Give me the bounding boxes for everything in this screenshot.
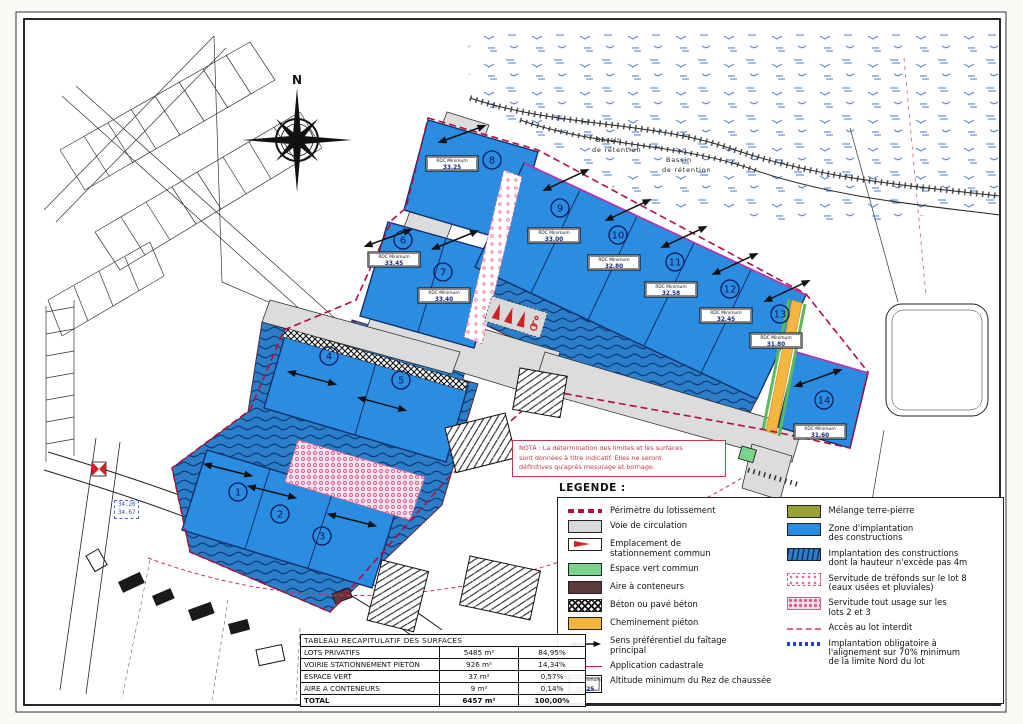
svg-text:8: 8 [489,155,495,166]
rdc-box-lot-12: RDC Minimum 32.45 [700,308,752,323]
rdc-box-lot-10: RDC Minimum 32.80 [588,255,640,270]
svg-text:33.45: 33.45 [385,261,403,267]
rdc-box-lot-14: RDC Minimum 31.60 [794,424,846,439]
perimeter-swatch-icon [568,509,602,513]
building-zone-swatch-icon [787,523,821,536]
legend-box: Périmètre du lotissement Voie de circula… [557,497,1004,704]
spot-elevation: 34.20 34.67 [114,500,139,519]
rdc-box-lot-9: RDC Minimum 33.00 [528,228,580,243]
legend-item-building-zone: Zone d'implantation des constructions [787,523,998,543]
svg-text:9: 9 [557,203,563,214]
legend-item-concrete: Béton ou pavé béton [568,599,779,612]
rdc-box-lot-11: RDC Minimum 32.58 [645,282,697,297]
svg-text:de rétention: de rétention [592,146,641,154]
servitude-trefonds-swatch-icon [787,573,821,586]
containers-swatch-icon [568,581,602,594]
legend-item-earth-stone: Mélange terre-pierre [787,505,998,518]
svg-text:RDC Minimum: RDC Minimum [436,158,467,164]
table-row: AIRE A CONTENEURS 9 m² 0,14% [301,683,586,695]
svg-text:4: 4 [326,351,332,362]
legend-item-mandatory-alignment: Implantation obligatoire à l'alignement … [787,638,998,667]
green-space-swatch-icon [568,563,602,576]
scanned-subdivision-plan: { "plan": { "compass_label": "N", "bassi… [0,0,1023,724]
legend-item-ridge-direction: Sens préférentiel du faîtage principal [568,635,779,655]
bassin-label-1: Bassin [596,136,622,144]
legend-item-altitude: RDC Minimum 33.25 Altitude minimum du Re… [568,675,779,693]
road-swatch-icon [568,520,602,533]
svg-text:de rétention: de rétention [662,166,711,174]
svg-text:RDC Minimum: RDC Minimum [760,335,791,341]
svg-text:33.00: 33.00 [545,237,563,243]
rdc-box-lot-6: RDC Minimum 33.45 [368,252,420,267]
survey-marker-icon [92,462,106,476]
rdc-box-lot-8: RDC Minimum 33.25 [426,156,478,171]
nota-box: NOTA : La détermination des limites et l… [512,440,726,477]
svg-text:1: 1 [235,487,241,498]
svg-text:RDC Minimum: RDC Minimum [538,230,569,236]
no-access-line-icon [787,628,821,630]
svg-text:RDC Minimum: RDC Minimum [598,257,629,263]
svg-text:33.25: 33.25 [443,165,461,171]
legend-item-pedestrian-path: Cheminement piéton [568,617,779,630]
legend-left-column: Périmètre du lotissement Voie de circula… [568,505,779,698]
svg-text:31.80: 31.80 [767,342,785,348]
legend-item-servitude-trefonds: Servitude de tréfonds sur le lot 8 (eaux… [787,573,998,593]
table-row: VOIRIE STATIONNEMENT PIETON 926 m² 14,34… [301,659,586,671]
bassin-label-2: Bassin [666,156,692,164]
servitude-usage-swatch-icon [787,597,821,610]
compass-north-label: N [292,73,302,87]
table-row-total: TOTAL 6457 m² 100,00% [301,695,586,707]
legend-item-no-access: Accès au lot interdit [787,622,998,632]
svg-text:5: 5 [398,375,404,386]
pedestrian-path-swatch-icon [568,617,602,630]
svg-text:3: 3 [319,531,325,542]
legend-title: LEGENDE : [559,482,1004,494]
concrete-swatch-icon [568,599,602,612]
svg-text:32.58: 32.58 [662,291,680,297]
surface-summary-table: TABLEAU RECAPITULATIF DES SURFACES LOTS … [300,634,586,707]
svg-text:12: 12 [724,284,737,295]
svg-text:11: 11 [669,257,682,268]
legend-right-column: Mélange terre-pierre Zone d'implantation… [787,505,998,698]
svg-text:2: 2 [277,509,283,520]
table-title: TABLEAU RECAPITULATIF DES SURFACES [300,634,586,646]
svg-text:32.80: 32.80 [605,264,623,270]
svg-text:32.45: 32.45 [717,317,735,323]
legend: LEGENDE : Périmètre du lotissement Voie … [557,482,1004,704]
legend-item-low-height-zone: Implantation des constructions dont la h… [787,548,998,568]
svg-text:RDC Minimum: RDC Minimum [655,284,686,290]
svg-text:14: 14 [818,395,831,406]
low-height-swatch-icon [787,548,821,561]
svg-text:6: 6 [400,235,406,246]
earth-stone-swatch-icon [787,505,821,518]
table-row: ESPACE VERT 37 m² 0,57% [301,671,586,683]
legend-item-containers: Aire à conteneurs [568,581,779,594]
svg-text:RDC Minimum: RDC Minimum [710,310,741,316]
legend-item-cadastral: Application cadastrale [568,660,779,670]
svg-text:13: 13 [774,309,787,320]
svg-text:7: 7 [440,267,446,278]
svg-text:RDC Minimum: RDC Minimum [804,426,835,432]
svg-text:10: 10 [612,230,625,241]
rdc-box-lot-13: RDC Minimum 31.80 [750,333,802,348]
legend-item-parking: Emplacement de stationnement commun [568,538,779,558]
alignment-beads-icon [787,642,821,647]
legend-item-servitude-usage: Servitude tout usage sur les lots 2 et 3 [787,597,998,617]
svg-text:33.40: 33.40 [435,297,453,303]
legend-item-green-space: Espace vert commun [568,563,779,576]
legend-item-road: Voie de circulation [568,520,779,533]
svg-text:31.60: 31.60 [811,433,829,439]
svg-text:RDC Minimum: RDC Minimum [378,254,409,260]
legend-item-perimeter: Périmètre du lotissement [568,505,779,515]
parking-swatch-icon [568,538,602,551]
svg-text:RDC Minimum: RDC Minimum [428,290,459,296]
rdc-box-lot-7: RDC Minimum 33.40 [418,288,470,303]
table-row: LOTS PRIVATIFS 5485 m² 84,95% [301,647,586,659]
